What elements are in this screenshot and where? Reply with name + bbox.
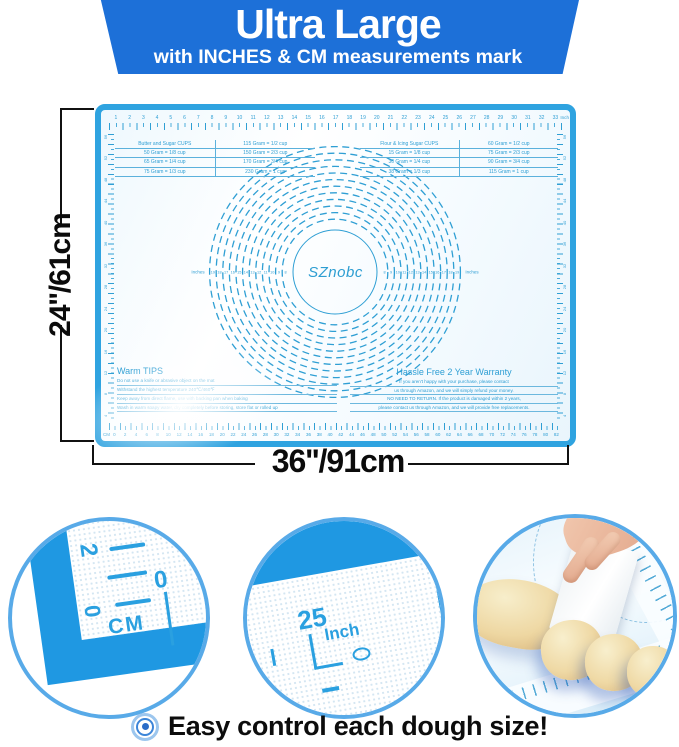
ruler-number: 36 — [562, 241, 568, 247]
svg-text:12: 12 — [409, 271, 413, 275]
ruler-number: 44 — [103, 198, 109, 204]
warranty-title: Hassle Free 2 Year Warranty — [350, 367, 558, 377]
ruler-number: 29 — [494, 115, 508, 121]
ruler-number: 4 — [150, 115, 164, 121]
ruler-number: 19 — [356, 115, 370, 121]
ruler-number: 18 — [342, 115, 356, 121]
ruler-number: 26 — [249, 432, 260, 437]
ruler-number: 3 — [136, 115, 150, 121]
height-bracket-top-tick — [60, 108, 94, 110]
ruler-number: 44 — [346, 432, 357, 437]
dough-piece — [627, 646, 677, 698]
width-bracket-line-right — [408, 463, 568, 465]
ruler-number: 60 — [432, 432, 443, 437]
ruler-number: 4 — [562, 413, 568, 419]
ruler-number: 46 — [357, 432, 368, 437]
ruler-number: 32 — [103, 263, 109, 269]
svg-text:12: 12 — [257, 271, 261, 275]
brand-logo: SZnobc — [291, 264, 381, 281]
ruler-number: 12 — [174, 432, 185, 437]
conversion-row: 38 Gram = 1/3 cup115 Gram = 1 cup — [360, 168, 558, 177]
conversion-cell: 150 Gram = 2/3 cup — [216, 149, 316, 157]
width-bracket-line-left — [93, 463, 255, 465]
cm-unit-label: CM — [107, 611, 147, 640]
ruler-number: 14 — [184, 432, 195, 437]
ruler-number: 10 — [163, 432, 174, 437]
ruler-number: 48 — [368, 432, 379, 437]
ruler-number: 58 — [422, 432, 433, 437]
warranty-line: NO NEED TO RETURN. If the product is dam… — [350, 395, 558, 404]
ruler-number: 2 — [120, 432, 131, 437]
tip-line: Withstand the highest temperature 240℃/4… — [117, 386, 337, 396]
ruler-number: 22 — [397, 115, 411, 121]
ruler-number: 52 — [562, 155, 568, 161]
ruler-number: 8 — [152, 432, 163, 437]
ruler-number: 21 — [384, 115, 398, 121]
warranty-line: please contact us through Amazon, and we… — [350, 404, 558, 413]
warranty: Hassle Free 2 Year Warranty If you aren'… — [350, 367, 558, 412]
left-cm-ruler: 56524844403632282420161284 — [103, 134, 114, 419]
ruler-number: 40 — [103, 220, 109, 226]
svg-text:Inches: Inches — [191, 270, 205, 275]
ruler-number: 80 — [540, 432, 551, 437]
ruler-number: 56 — [411, 432, 422, 437]
ruler-number: 56 — [562, 134, 568, 140]
ruler-number: 40 — [562, 220, 568, 226]
ruler-number: 52 — [389, 432, 400, 437]
ruler-number: 32 — [562, 263, 568, 269]
ruler-number: 40 — [325, 432, 336, 437]
ruler-number: 4 — [131, 432, 142, 437]
ruler-number: 16 — [315, 115, 329, 121]
ruler-number: 25 — [439, 115, 453, 121]
ruler-number: 22 — [228, 432, 239, 437]
ruler-number: 23 — [411, 115, 425, 121]
svg-text:18: 18 — [217, 271, 221, 275]
conversion-row: 30 Gram = 1/4 cup90 Gram = 3/4 cup — [360, 158, 558, 167]
conversion-row: 15 Gram = 1/8 cup75 Gram = 2/3 cup — [360, 149, 558, 158]
butter-sugar-conversion-table: Butter and Sugar CUPS115 Gram = 1/2 cup5… — [115, 140, 315, 177]
cm-ruler-half-ticks — [109, 426, 562, 430]
cm-ruler-unit: CM — [103, 432, 110, 437]
inset-inch-closeup: 25 Inch — [243, 517, 445, 719]
ruler-number: 5 — [164, 115, 178, 121]
ruler-number: 82 — [551, 432, 562, 437]
tip-line: Keep away from direct flame, use with ba… — [117, 395, 337, 404]
ruler-number: 6 — [141, 432, 152, 437]
ruler-number: 24 — [238, 432, 249, 437]
banner-title: Ultra Large — [235, 3, 440, 45]
tip-line: Do not use a knife or abrasive object on… — [117, 377, 337, 386]
ruler-number: 50 — [379, 432, 390, 437]
left-ruler-numbers: 56524844403632282420161284 — [103, 134, 109, 419]
svg-text:10: 10 — [396, 271, 400, 275]
ruler-number: 28 — [260, 432, 271, 437]
svg-text:9: 9 — [390, 271, 392, 275]
warranty-line: us through Amazon, and we will simply re… — [350, 387, 558, 396]
ruler-number: 8 — [103, 391, 109, 397]
svg-text:19: 19 — [211, 271, 215, 275]
inch-ruler-half-ticks — [109, 123, 562, 127]
svg-text:13: 13 — [415, 271, 419, 275]
conversion-cell: 50 Gram = 1/8 cup — [115, 149, 216, 157]
bullseye-icon — [131, 713, 159, 741]
ruler-number: 62 — [443, 432, 454, 437]
svg-text:10: 10 — [270, 271, 274, 275]
ruler-number: 74 — [508, 432, 519, 437]
warranty-line: If you aren't happy with your purchase, … — [350, 378, 558, 387]
ruler-number: 8 — [205, 115, 219, 121]
conversion-cell: 75 Gram = 1/3 cup — [115, 168, 216, 176]
conversion-cell: 90 Gram = 3/4 cup — [460, 158, 559, 166]
ruler-number: 38 — [314, 432, 325, 437]
warm-tips-title: Warm TIPS — [117, 366, 337, 376]
ruler-number: 42 — [335, 432, 346, 437]
ruler-number: 76 — [519, 432, 530, 437]
svg-text:15: 15 — [237, 271, 241, 275]
svg-text:8: 8 — [383, 271, 385, 275]
page-root: Ultra Large with INCHES & CM measurement… — [0, 0, 679, 747]
ruler-number: 24 — [425, 115, 439, 121]
cm-closeup-scene: 2 0 CM 0 — [8, 517, 210, 719]
ruler-number: 68 — [476, 432, 487, 437]
ruler-number: 12 — [562, 370, 568, 376]
ruler-number: 48 — [562, 177, 568, 183]
ruler-number: 18 — [206, 432, 217, 437]
ruler-number: 8 — [562, 391, 568, 397]
ruler-number: 31 — [521, 115, 535, 121]
ruler-number: 28 — [480, 115, 494, 121]
ruler-number: 72 — [497, 432, 508, 437]
conversion-cell: 170 Gram = 3/4 cup — [216, 158, 316, 166]
svg-text:14: 14 — [244, 271, 248, 275]
svg-text:15: 15 — [429, 271, 433, 275]
ruler-number: 44 — [562, 198, 568, 204]
ruler-number: 32 — [535, 115, 549, 121]
conversion-cell: 38 Gram = 1/3 cup — [360, 168, 460, 176]
ruler-number: 48 — [103, 177, 109, 183]
conversion-cell: 115 Gram = 1 cup — [460, 168, 559, 176]
svg-text:11: 11 — [264, 271, 268, 275]
width-bracket-left-tick — [92, 445, 94, 465]
ruler-number: 20 — [217, 432, 228, 437]
ruler-number: 0 — [109, 432, 120, 437]
ruler-number: 12 — [260, 115, 274, 121]
conversion-cell: Flour & Icing Sugar CUPS — [360, 140, 460, 148]
ruler-number: 27 — [466, 115, 480, 121]
ruler-number: 20 — [103, 327, 109, 333]
ruler-number: 14 — [288, 115, 302, 121]
svg-text:18: 18 — [448, 271, 452, 275]
svg-text:14: 14 — [422, 271, 426, 275]
conversion-cell: 230 Gram = 1 cup — [216, 168, 316, 176]
ruler-number: 30 — [507, 115, 521, 121]
ruler-number: 16 — [562, 349, 568, 355]
svg-text:19: 19 — [455, 271, 459, 275]
ruler-number: 20 — [370, 115, 384, 121]
conversion-cell: 65 Gram = 1/4 cup — [115, 158, 216, 166]
warm-tips: Warm TIPS Do not use a knife or abrasive… — [117, 366, 337, 412]
svg-text:16: 16 — [435, 271, 439, 275]
ruler-number: 64 — [454, 432, 465, 437]
ruler-number: 9 — [219, 115, 233, 121]
right-ruler-numbers: 56524844403632282420161284 — [562, 134, 568, 419]
svg-text:8: 8 — [284, 271, 286, 275]
inset-cm-closeup: 2 0 CM 0 — [8, 517, 210, 719]
ruler-number: 11 — [246, 115, 260, 121]
ruler-number: 6 — [178, 115, 192, 121]
banner-subtitle: with INCHES & CM measurements mark — [154, 45, 522, 69]
ruler-number: 36 — [103, 241, 109, 247]
ruler-number: 78 — [529, 432, 540, 437]
cm-ruler-numbers: 0246810121416182022242628303234363840424… — [109, 432, 562, 437]
ruler-number: 16 — [103, 349, 109, 355]
conversion-row: Butter and Sugar CUPS115 Gram = 1/2 cup — [115, 140, 315, 149]
ruler-number: 17 — [329, 115, 343, 121]
ruler-number: 15 — [301, 115, 315, 121]
conversion-cell: 15 Gram = 1/8 cup — [360, 149, 460, 157]
pastry-mat-surface: 8899101011111212131314141515161617171818… — [101, 110, 570, 441]
conversion-cell: Butter and Sugar CUPS — [115, 140, 216, 148]
warm-tips-lines: Do not use a knife or abrasive object on… — [117, 377, 337, 412]
ruler-number: 10 — [233, 115, 247, 121]
conversion-row: 50 Gram = 1/8 cup150 Gram = 2/3 cup — [115, 149, 315, 158]
ruler-number: 4 — [103, 413, 109, 419]
ruler-number: 13 — [274, 115, 288, 121]
ruler-number: 32 — [282, 432, 293, 437]
svg-text:9: 9 — [278, 271, 280, 275]
svg-text:Inches: Inches — [465, 270, 479, 275]
width-bracket-right-tick — [567, 445, 569, 465]
ruler-number: 30 — [271, 432, 282, 437]
ruler-number: 66 — [465, 432, 476, 437]
width-dimension-label: 36''/91cm — [253, 443, 423, 480]
ruler-number: 24 — [562, 306, 568, 312]
conversion-row: 65 Gram = 1/4 cup170 Gram = 3/4 cup — [115, 158, 315, 167]
conversion-cell: 115 Gram = 1/2 cup — [216, 140, 316, 148]
pastry-mat: 8899101011111212131314141515161617171818… — [95, 104, 576, 447]
ruler-number: 16 — [195, 432, 206, 437]
height-dimension-label: 24''/61cm — [44, 187, 78, 363]
inset-dough-photo — [473, 514, 677, 718]
ruler-number: 26 — [452, 115, 466, 121]
inch-ruler-numbers: 1234567891011121314151617181920212223242… — [109, 115, 562, 121]
svg-text:17: 17 — [442, 271, 446, 275]
conversion-cell: 60 Gram = 1/2 cup — [460, 140, 559, 148]
ruler-number: 52 — [103, 155, 109, 161]
svg-text:11: 11 — [402, 271, 406, 275]
svg-text:16: 16 — [231, 271, 235, 275]
ruler-number: 1 — [109, 115, 123, 121]
caption-text: Easy control each dough size! — [168, 711, 548, 742]
conversion-row: 75 Gram = 1/3 cup230 Gram = 1 cup — [115, 168, 315, 177]
ruler-number: 2 — [123, 115, 137, 121]
ruler-number: 54 — [400, 432, 411, 437]
ruler-number: 28 — [103, 284, 109, 290]
ruler-number: 34 — [292, 432, 303, 437]
inch-closeup-scene: 25 Inch — [243, 517, 445, 719]
bottom-caption: Easy control each dough size! — [0, 711, 679, 742]
tip-line: Wash in warm soapy water, dry completely… — [117, 404, 337, 413]
svg-text:17: 17 — [224, 271, 228, 275]
right-cm-ruler: 56524844403632282420161284 — [557, 134, 568, 419]
promo-banner: Ultra Large with INCHES & CM measurement… — [97, 0, 579, 74]
svg-text:13: 13 — [250, 271, 254, 275]
warranty-lines: If you aren't happy with your purchase, … — [350, 378, 558, 412]
ruler-number: 56 — [103, 134, 109, 140]
conversion-cell: 75 Gram = 2/3 cup — [460, 149, 559, 157]
ruler-number: 12 — [103, 370, 109, 376]
ruler-number: 28 — [562, 284, 568, 290]
inch-ruler-unit: Inch — [560, 115, 569, 120]
ruler-number: 24 — [103, 306, 109, 312]
left-ruler-half-ticks — [111, 134, 114, 419]
ruler-number: 7 — [191, 115, 205, 121]
flour-sugar-conversion-table: Flour & Icing Sugar CUPS60 Gram = 1/2 cu… — [360, 140, 558, 177]
conversion-row: Flour & Icing Sugar CUPS60 Gram = 1/2 cu… — [360, 140, 558, 149]
ruler-number: 20 — [562, 327, 568, 333]
ruler-number: 70 — [486, 432, 497, 437]
conversion-cell: 30 Gram = 1/4 cup — [360, 158, 460, 166]
height-bracket-bottom-tick — [60, 440, 94, 442]
ruler-number: 36 — [303, 432, 314, 437]
